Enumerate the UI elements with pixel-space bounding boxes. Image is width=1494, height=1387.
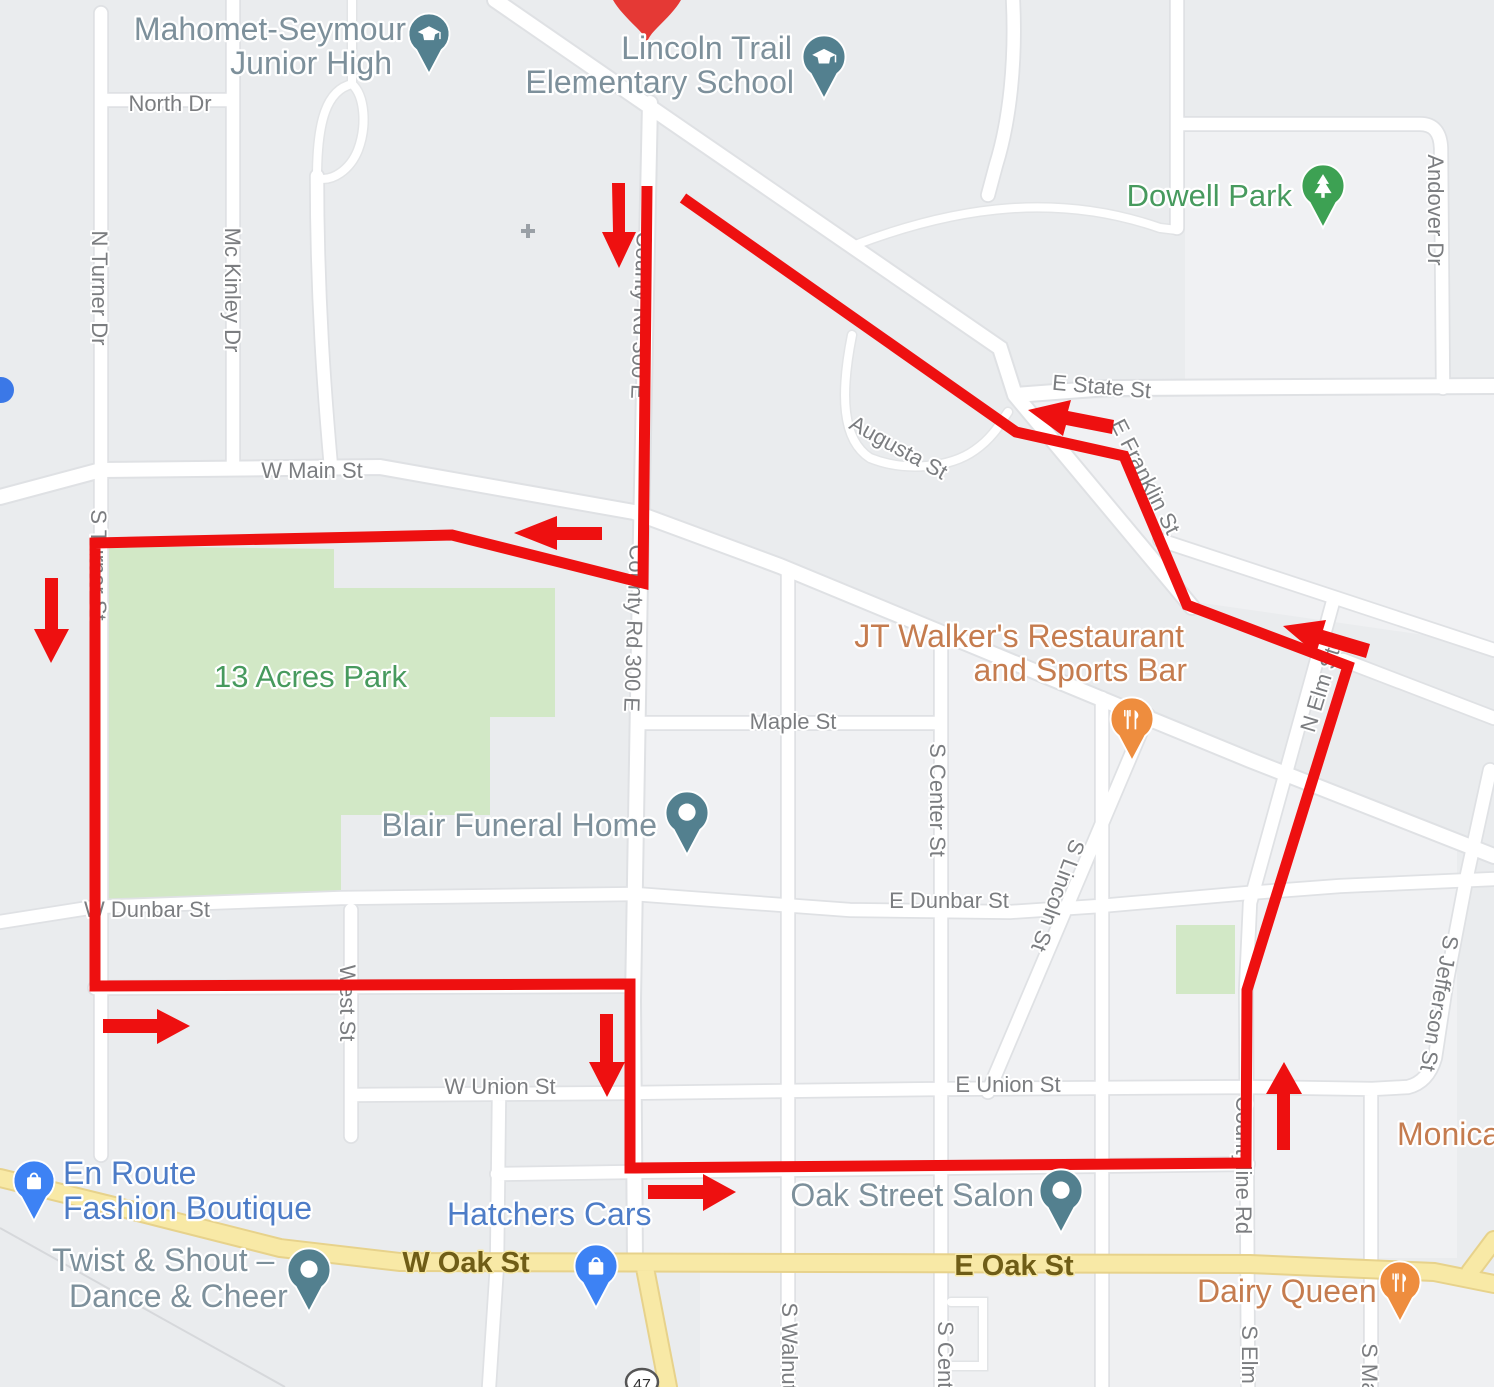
svg-text:Dance & Cheer: Dance & Cheer	[69, 1278, 288, 1314]
svg-text:S Center St: S Center St	[933, 1321, 958, 1387]
svg-text:Lincoln Trail: Lincoln Trail	[621, 30, 792, 66]
svg-text:S Elm St: S Elm St	[1237, 1325, 1262, 1387]
svg-text:Oak Street Salon: Oak Street Salon	[790, 1177, 1034, 1213]
svg-text:S Mason St: S Mason St	[1357, 1343, 1382, 1387]
svg-text:E Union St: E Union St	[955, 1072, 1060, 1097]
svg-text:Maple St: Maple St	[750, 709, 837, 734]
svg-text:W Dunbar St: W Dunbar St	[84, 897, 210, 922]
svg-text:Dowell Park: Dowell Park	[1127, 178, 1293, 213]
svg-text:Dairy Queen: Dairy Queen	[1197, 1273, 1377, 1309]
svg-text:Elementary School: Elementary School	[525, 64, 794, 100]
svg-text:Mc Kinley Dr: Mc Kinley Dr	[220, 228, 245, 353]
svg-text:and Sports Bar: and Sports Bar	[974, 652, 1188, 688]
svg-text:Hatchers Cars: Hatchers Cars	[447, 1196, 652, 1232]
svg-text:S Walnut St: S Walnut St	[777, 1302, 802, 1387]
svg-text:North Dr: North Dr	[128, 91, 211, 116]
svg-text:Andover Dr: Andover Dr	[1423, 154, 1448, 265]
svg-text:West St: West St	[335, 965, 360, 1042]
svg-text:S Center St: S Center St	[925, 743, 950, 857]
svg-text:N Turner Dr: N Turner Dr	[87, 231, 112, 346]
svg-text:W Main St: W Main St	[261, 458, 362, 483]
svg-text:Mahomet-Seymour: Mahomet-Seymour	[134, 11, 406, 47]
svg-text:13 Acres Park: 13 Acres Park	[214, 659, 407, 694]
svg-text:Fashion Boutique: Fashion Boutique	[63, 1190, 312, 1226]
svg-text:Twist & Shout –: Twist & Shout –	[52, 1242, 275, 1278]
svg-text:E Oak St: E Oak St	[954, 1250, 1074, 1282]
svg-text:E Dunbar St: E Dunbar St	[889, 888, 1009, 913]
svg-text:47: 47	[633, 1377, 651, 1387]
svg-text:W Oak St: W Oak St	[402, 1247, 530, 1279]
svg-text:JT Walker's Restaurant: JT Walker's Restaurant	[854, 618, 1184, 654]
svg-text:En Route: En Route	[63, 1155, 196, 1191]
svg-text:Monica: Monica	[1397, 1116, 1494, 1152]
svg-text:Junior High: Junior High	[230, 45, 392, 81]
svg-text:W Union St: W Union St	[444, 1074, 555, 1099]
svg-text:Blair Funeral Home: Blair Funeral Home	[381, 807, 657, 843]
